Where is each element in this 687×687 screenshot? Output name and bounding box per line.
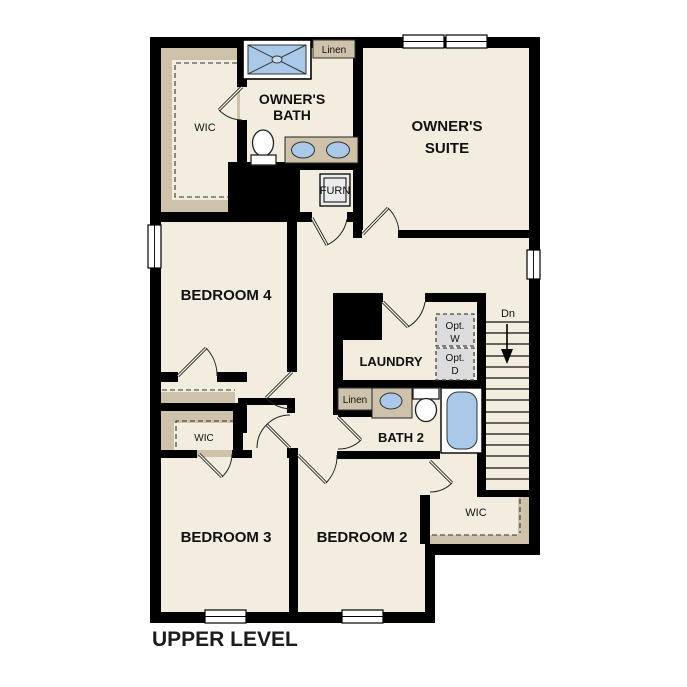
floor-plan-drawing: OWNER'S BATH OWNER'S SUITE BEDROOM 4 BED… (0, 0, 687, 687)
window (205, 610, 246, 623)
bedroom4-closet-shading (160, 392, 235, 403)
floor-plan-page: OWNER'S BATH OWNER'S SUITE BEDROOM 4 BED… (0, 0, 687, 687)
window (342, 610, 383, 623)
sink-left (292, 142, 315, 158)
window (446, 35, 487, 48)
bedroom4-label: BEDROOM 4 (181, 287, 273, 304)
vanity-bath2 (372, 388, 412, 418)
bedroom2-label: BEDROOM 2 (317, 529, 408, 546)
linen-upper-label: Linen (322, 45, 346, 56)
shower (243, 40, 311, 79)
opt-washer-label-line2: W (450, 334, 460, 345)
bedroom3-label: BEDROOM 3 (181, 529, 272, 546)
sink-right (327, 142, 350, 158)
bedroom3-wic-label: WIC (194, 433, 213, 444)
owners-bath-label-line1: OWNER'S (259, 91, 325, 107)
opt-dryer-label-line2: D (451, 366, 458, 377)
window (148, 225, 161, 268)
owners-suite-label-line2: SUITE (425, 140, 469, 157)
opt-dryer-label-line1: Opt. (446, 353, 465, 364)
furnace-label: FURN (320, 185, 351, 197)
double-vanity-owners-bath (285, 137, 358, 163)
shower-drain (272, 56, 282, 63)
stairs-dn-label: Dn (501, 308, 515, 320)
window (527, 250, 540, 279)
window (403, 35, 444, 48)
bathtub (441, 388, 482, 453)
linen-bath2-label: Linen (343, 395, 367, 406)
opt-washer-label-line1: Opt. (446, 321, 465, 332)
page-title: UPPER LEVEL (152, 628, 298, 651)
bath2-label: BATH 2 (378, 430, 424, 445)
laundry-label: LAUNDRY (359, 354, 422, 369)
sink-bath2 (380, 393, 402, 409)
bedroom2-wic-label: WIC (465, 507, 486, 519)
owners-suite-label-line1: OWNER'S (411, 118, 482, 135)
toilet-bath2 (413, 388, 439, 422)
owners-wic-label: WIC (194, 122, 215, 134)
owners-bath-label-line2: BATH (273, 107, 311, 123)
